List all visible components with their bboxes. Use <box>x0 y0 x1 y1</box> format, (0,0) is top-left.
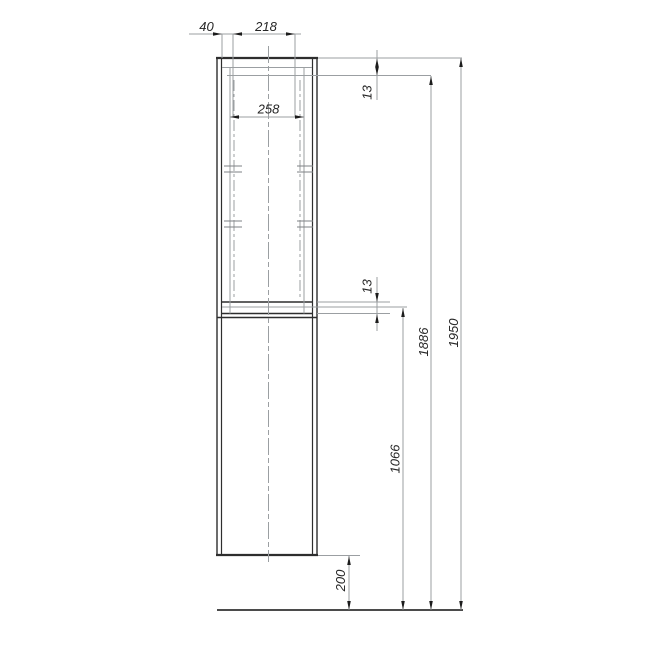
dim-label-1066: 1066 <box>388 444 403 474</box>
arrowhead <box>375 293 379 302</box>
technical-drawing: 40 218 258 13 13 1066 1886 1950 200 <box>0 0 646 646</box>
center-lines <box>234 46 300 562</box>
cabinet-outline <box>216 57 318 555</box>
cabinet-interior <box>222 68 431 314</box>
arrowhead <box>429 76 433 85</box>
arrowhead <box>375 67 379 76</box>
arrowhead <box>429 601 433 610</box>
dim-label-258: 258 <box>257 102 280 117</box>
arrowhead <box>375 59 379 68</box>
arrowhead <box>401 308 405 317</box>
dimension-labels: 40 218 258 13 13 1066 1886 1950 200 <box>199 19 461 592</box>
dim-label-13-mid: 13 <box>360 279 375 294</box>
arrowhead <box>233 32 242 36</box>
arrowhead <box>347 601 351 610</box>
dim-label-200: 200 <box>333 569 348 592</box>
dim-label-40: 40 <box>199 19 214 34</box>
arrowhead <box>401 601 405 610</box>
dim-label-1886: 1886 <box>416 327 431 357</box>
arrowhead <box>459 58 463 67</box>
arrowheads <box>213 32 463 610</box>
arrowhead <box>459 601 463 610</box>
arrowhead <box>347 556 351 565</box>
arrowhead <box>213 32 222 36</box>
arrowhead <box>375 314 379 323</box>
dim-label-13-top: 13 <box>360 85 375 100</box>
dim-label-218: 218 <box>254 19 277 34</box>
drawing-canvas: 40 218 258 13 13 1066 1886 1950 200 <box>0 0 646 646</box>
dim-label-1950: 1950 <box>446 318 461 348</box>
arrowhead <box>286 32 295 36</box>
